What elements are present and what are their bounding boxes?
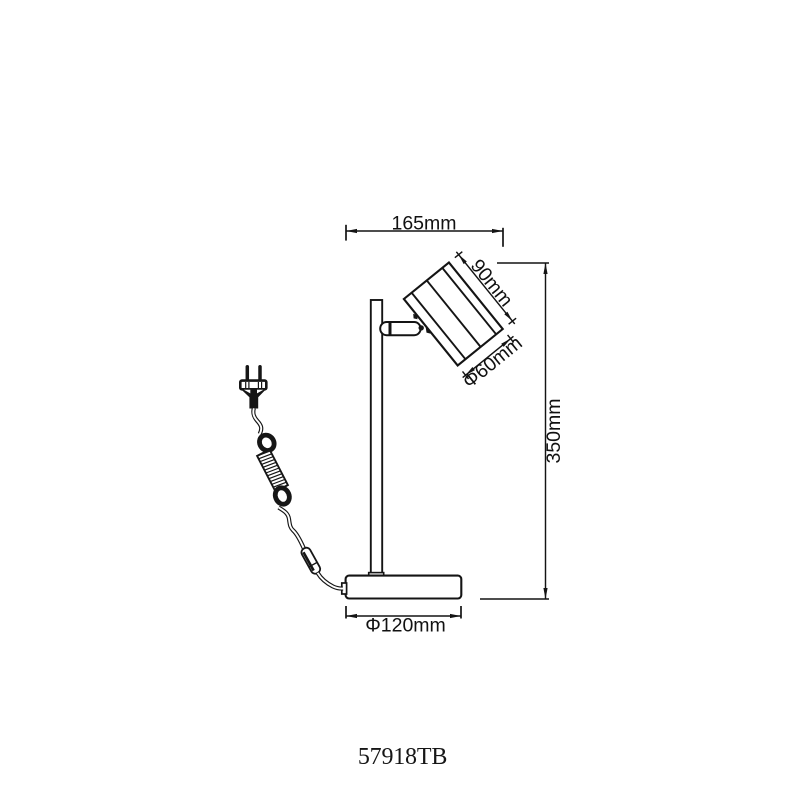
- svg-text:350mm: 350mm: [543, 398, 565, 463]
- svg-text:57918TB: 57918TB: [358, 744, 447, 770]
- svg-text:Φ120mm: Φ120mm: [365, 615, 446, 637]
- svg-text:165mm: 165mm: [391, 213, 456, 235]
